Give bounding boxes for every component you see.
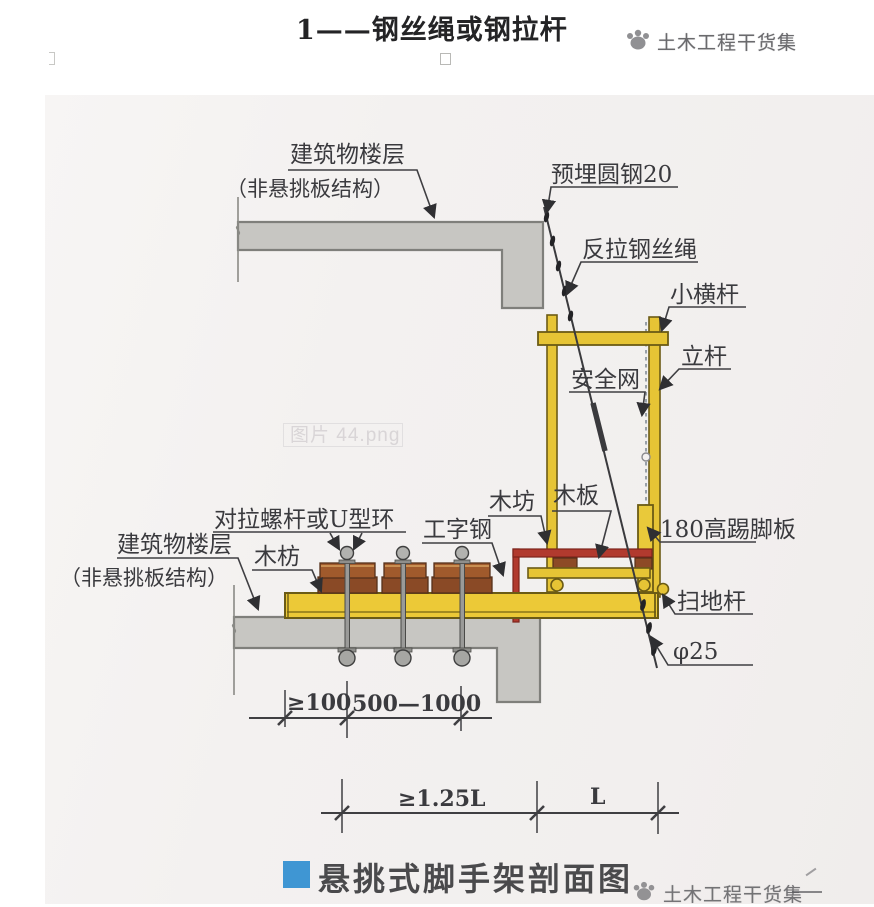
- leader-wood-batten-left: [252, 570, 321, 591]
- wood-plank-board: [528, 568, 650, 578]
- leader-small-crossbar: [662, 307, 746, 330]
- label-i-beam: 工字钢: [423, 517, 492, 543]
- label-wood-batten-center: 木坊: [489, 489, 535, 515]
- label-sweeping-rod: 扫地杆: [677, 589, 746, 615]
- label-embedded-round-steel: 预埋圆钢20: [551, 162, 672, 188]
- caption-title: 悬挑式脚手架剖面图: [318, 854, 633, 900]
- scaffold-section-drawing: 建筑物楼层 （非悬挑板结构） 预埋圆钢20 反拉钢丝绳 小横杆 立杆 安全网 对…: [0, 0, 874, 904]
- coupler-left: [551, 579, 563, 591]
- label-tie-bolt-or-u-ring: 对拉螺杆或U型环: [214, 507, 394, 533]
- leader-safety-net: [569, 392, 645, 415]
- paw-logo-icon-bottom: [630, 877, 658, 904]
- leader-tie-bolt-arrow-1: [330, 533, 339, 549]
- upper-floor-slab: [237, 197, 543, 308]
- dimension-lower: [321, 779, 679, 834]
- i-beam-body: [285, 593, 658, 618]
- label-small-crossbar: 小横杆: [670, 282, 739, 308]
- watermark-bottom: 土木工程干货集: [663, 880, 803, 907]
- label-building-floor-upper: 建筑物楼层: [290, 142, 405, 168]
- label-vertical-pole: 立杆: [681, 344, 727, 370]
- small-crossbar-rail: [538, 332, 668, 345]
- label-phi25: φ25: [673, 639, 718, 665]
- label-building-floor-lower: 建筑物楼层: [117, 532, 232, 558]
- wire-rope-sleeve: [593, 403, 605, 451]
- watermark-dash: [792, 891, 822, 893]
- label-toe-board: 180高踢脚板: [660, 517, 796, 543]
- sweeping-rod-end: [658, 584, 669, 595]
- label-wood-batten-left: 木枋: [254, 544, 300, 570]
- i-beam-group: [285, 593, 658, 618]
- leader-embedded-steel: [547, 187, 678, 212]
- label-wood-plank: 木板: [553, 483, 599, 509]
- leader-wood-batten-center: [488, 516, 547, 543]
- red-ledger-bar: [513, 549, 652, 557]
- leader-tie-bolt-arrow-2: [354, 533, 362, 549]
- dim-cantilever-span: L: [590, 784, 605, 810]
- label-counter-pull-wire-rope: 反拉钢丝绳: [582, 237, 697, 263]
- label-building-floor-lower-sub: （非悬挑板结构）: [60, 566, 228, 590]
- caption-bullet-square: [283, 861, 310, 888]
- dim-inner-anchor-span: ≥1.25L: [398, 786, 485, 812]
- label-safety-net: 安全网: [571, 367, 640, 393]
- dim-anchor-edge-distance: ≥100: [287, 690, 351, 716]
- label-building-floor-upper-sub: （非悬挑板结构）: [226, 177, 394, 201]
- coupler-right: [638, 579, 650, 591]
- dim-bolt-spacing: 500—1000: [352, 691, 481, 717]
- leader-vertical-pole: [660, 369, 731, 389]
